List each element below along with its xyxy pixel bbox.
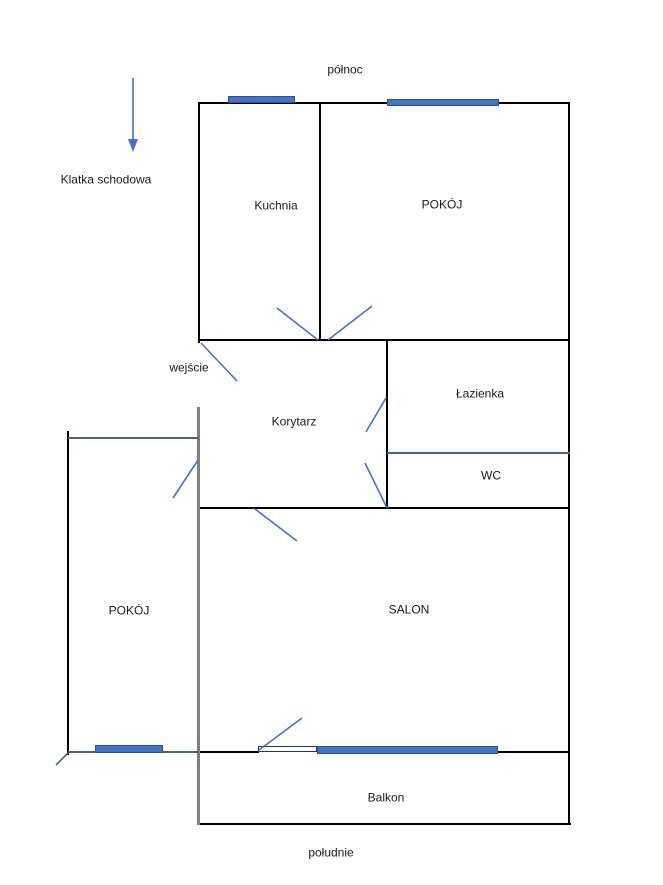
door-swing-wc [365, 463, 387, 508]
room-label-balkon: Balkon [368, 791, 405, 804]
wall-east [568, 102, 570, 825]
window-kuchnia [228, 96, 295, 103]
door-swing-salon [255, 509, 297, 541]
room-label-kuchnia: Kuchnia [254, 199, 297, 212]
room-label-pokoj-west: POKÓJ [109, 604, 150, 617]
window-salon [317, 746, 498, 754]
wall-pokoj-west-outer [67, 437, 69, 755]
door-swing-pokoj-west [173, 460, 198, 498]
room-label-korytarz: Korytarz [272, 415, 317, 428]
door-swing-kuchnia [277, 308, 318, 340]
room-label-pokoj-north: POKÓJ [422, 198, 463, 211]
wall-salon-south-left [199, 751, 259, 753]
line-pokoj-west-top [68, 437, 199, 439]
wall-kuchnia-divider [319, 103, 321, 340]
floor-plan: północ południe Klatka schodowa wejście … [0, 0, 663, 885]
wall-lazienka-divider [386, 340, 388, 508]
compass-south-label: południe [308, 846, 353, 859]
room-label-lazienka: Łazienka [456, 387, 504, 400]
door-leaf-balkon [258, 746, 317, 752]
room-label-salon: SALON [389, 603, 430, 616]
window-pokoj-west [95, 745, 163, 753]
compass-north-label: północ [327, 63, 362, 76]
door-swing-lazienka [366, 398, 386, 432]
window-pokoj-north [387, 99, 499, 106]
staircase-arrow-head [128, 139, 138, 152]
staircase-label: Klatka schodowa [61, 173, 152, 186]
wall-west-upper [198, 102, 200, 343]
entrance-label: wejście [169, 361, 208, 374]
room-label-wc: WC [481, 469, 501, 482]
wall-middle [199, 339, 570, 341]
wall-korytarz-south [199, 507, 570, 509]
wall-salon-south-right [497, 751, 570, 753]
wall-balkon-south [198, 823, 571, 825]
wall-west-lower-gray [197, 407, 200, 825]
door-swing-pokoj-north [328, 306, 372, 340]
line-wc-divider [387, 452, 570, 454]
